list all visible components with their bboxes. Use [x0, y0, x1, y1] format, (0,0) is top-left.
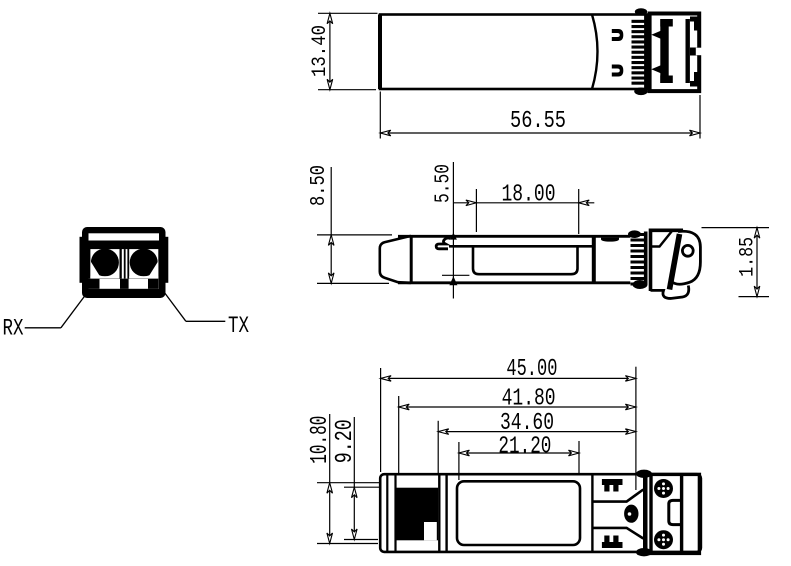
svg-text:13.40: 13.40: [309, 25, 332, 77]
svg-text:8.50: 8.50: [308, 165, 331, 206]
svg-text:RX: RX: [3, 315, 24, 342]
svg-text:9.20: 9.20: [332, 419, 359, 463]
svg-text:56.55: 56.55: [510, 108, 566, 135]
svg-text:TX: TX: [228, 313, 249, 340]
svg-text:5.50: 5.50: [432, 164, 455, 203]
svg-text:41.80: 41.80: [502, 386, 556, 413]
svg-text:21.20: 21.20: [498, 433, 551, 460]
svg-text:18.00: 18.00: [502, 182, 556, 209]
svg-text:45.00: 45.00: [506, 356, 557, 383]
svg-text:1.85: 1.85: [737, 237, 760, 277]
svg-text:10.80: 10.80: [307, 416, 334, 464]
